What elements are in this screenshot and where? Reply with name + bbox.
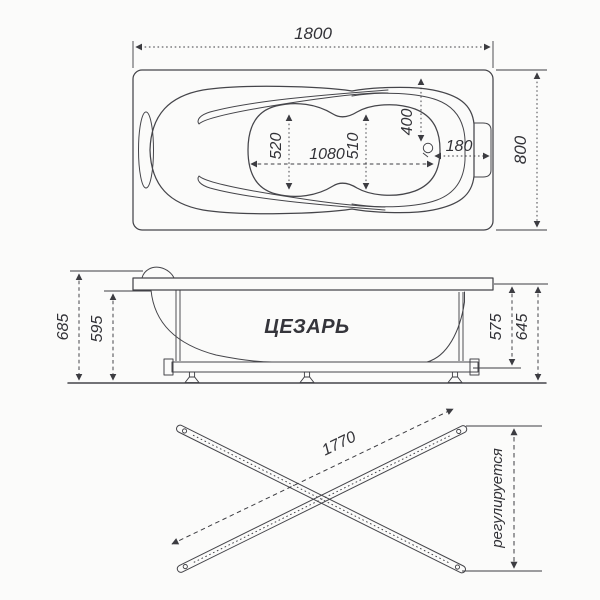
foot-stem xyxy=(189,372,194,377)
dim-rim-underside-height-label: 595 xyxy=(89,316,106,343)
side-view: ЦЕЗАРЬ 685 595 575 645 xyxy=(55,267,548,383)
dim-rail-length-label: 1770 xyxy=(319,429,359,460)
rail-hole xyxy=(182,564,188,570)
top-view: 1800 800 520 510 400 1080 xyxy=(133,24,547,230)
dim-drain-offset-end-label: 180 xyxy=(446,138,473,155)
bathtub-technical-drawing: 1800 800 520 510 400 1080 xyxy=(0,0,600,600)
dim-overall-length-label: 1800 xyxy=(294,24,332,43)
shell-profile-left xyxy=(151,290,272,362)
adjustable-label: регулируется xyxy=(489,448,506,549)
dim-shell-height-label: 575 xyxy=(488,314,505,341)
foot-stem xyxy=(304,372,309,377)
rim-slab xyxy=(133,278,493,290)
headrest xyxy=(139,112,154,188)
technical-drawing-page: 1800 800 520 510 400 1080 xyxy=(0,0,600,600)
product-name-label: ЦЕЗАРЬ xyxy=(264,316,349,338)
dim-overall-length: 1800 xyxy=(133,24,493,68)
foot-stem xyxy=(452,372,457,377)
base-view: 1770 регулируется xyxy=(172,409,542,574)
dim-overall-width-label: 800 xyxy=(511,135,530,164)
dim-drain-offset-long-label: 400 xyxy=(399,109,416,136)
dim-basin-width-left: 520 xyxy=(268,115,289,189)
foot-base xyxy=(448,377,462,383)
dim-overall-width: 800 xyxy=(496,70,547,230)
adjustable-foot xyxy=(448,372,462,383)
dim-drain-offset-end: 180 xyxy=(435,138,489,156)
rail-hole xyxy=(455,564,461,570)
dim-rim-top-height-label: 645 xyxy=(514,314,531,341)
foot-base xyxy=(300,377,314,383)
dim-line-rail-length xyxy=(172,409,453,544)
dim-rim-underside-height: 595 xyxy=(89,291,151,380)
adjustable-foot xyxy=(185,372,199,383)
dim-basin-width-mid: 510 xyxy=(345,115,366,189)
drain-icon xyxy=(423,143,432,152)
support-frame-bar xyxy=(172,362,478,372)
dim-total-height-label: 685 xyxy=(55,314,72,341)
dim-adjustable-height: регулируется xyxy=(462,426,542,571)
headrest-hump xyxy=(142,267,174,278)
adjustable-foot xyxy=(300,372,314,383)
dim-basin-length-label: 1080 xyxy=(309,146,345,163)
dim-basin-width-left-label: 520 xyxy=(268,133,285,160)
drain-tick xyxy=(423,153,428,157)
rail-hole xyxy=(182,428,188,434)
dim-rail-length: 1770 xyxy=(172,409,453,544)
overflow-tab xyxy=(474,123,491,177)
rail-hole xyxy=(456,429,462,435)
dim-basin-width-mid-label: 510 xyxy=(345,133,362,160)
foot-base xyxy=(185,377,199,383)
